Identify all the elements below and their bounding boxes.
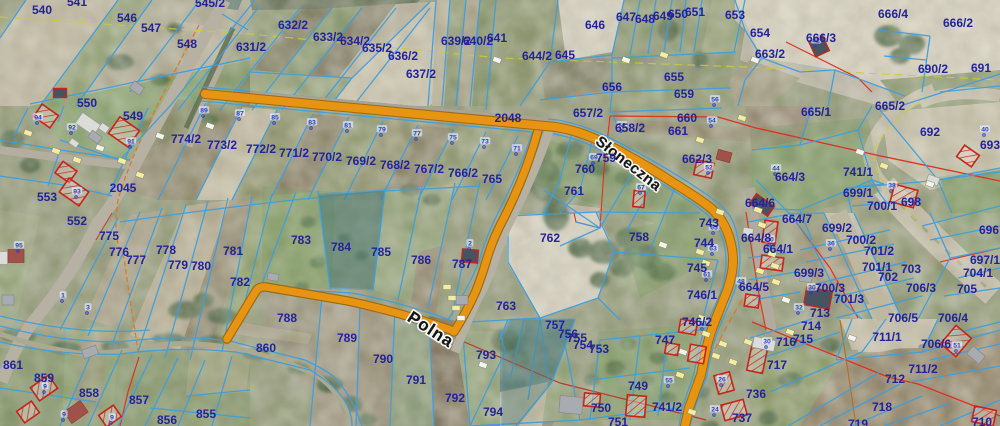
svg-text:693: 693 xyxy=(980,138,1000,152)
svg-text:859: 859 xyxy=(34,371,54,385)
svg-text:737: 737 xyxy=(732,411,752,425)
svg-text:744: 744 xyxy=(694,236,714,250)
svg-text:765: 765 xyxy=(482,172,502,186)
svg-text:692: 692 xyxy=(920,125,940,139)
svg-text:664/6: 664/6 xyxy=(745,196,775,210)
svg-text:716: 716 xyxy=(776,335,796,349)
svg-text:781: 781 xyxy=(223,244,243,258)
svg-text:632/2: 632/2 xyxy=(278,18,308,32)
svg-text:655: 655 xyxy=(664,70,684,84)
svg-text:691: 691 xyxy=(971,61,991,75)
svg-text:553: 553 xyxy=(37,190,57,204)
svg-text:787: 787 xyxy=(452,257,472,271)
svg-text:659: 659 xyxy=(674,87,694,101)
svg-text:661: 661 xyxy=(668,124,688,138)
svg-text:85: 85 xyxy=(271,115,279,122)
svg-text:706/3: 706/3 xyxy=(906,281,936,295)
svg-text:713: 713 xyxy=(810,306,830,320)
svg-text:56: 56 xyxy=(711,97,719,104)
svg-text:770/2: 770/2 xyxy=(312,150,342,164)
svg-text:763: 763 xyxy=(496,299,516,313)
svg-text:785: 785 xyxy=(371,245,391,259)
svg-text:860: 860 xyxy=(256,341,276,355)
svg-text:712: 712 xyxy=(885,372,905,386)
svg-text:94: 94 xyxy=(34,115,42,122)
svg-text:92: 92 xyxy=(68,125,76,132)
svg-text:772/2: 772/2 xyxy=(246,142,276,156)
svg-text:79: 79 xyxy=(378,127,386,134)
svg-text:701/3: 701/3 xyxy=(834,292,864,306)
svg-text:791: 791 xyxy=(406,373,426,387)
svg-text:758: 758 xyxy=(629,230,649,244)
svg-text:699/3: 699/3 xyxy=(794,266,824,280)
svg-text:666/4: 666/4 xyxy=(878,7,908,21)
svg-text:719: 719 xyxy=(848,417,868,426)
svg-text:704/1: 704/1 xyxy=(963,266,993,280)
svg-text:751: 751 xyxy=(608,415,628,426)
svg-text:75: 75 xyxy=(449,135,457,142)
svg-text:645: 645 xyxy=(555,48,575,62)
svg-text:717: 717 xyxy=(767,358,787,372)
svg-text:711/1: 711/1 xyxy=(872,330,902,344)
svg-text:701/2: 701/2 xyxy=(864,244,894,258)
svg-text:32: 32 xyxy=(795,305,803,312)
svg-text:664/5: 664/5 xyxy=(739,280,769,294)
svg-text:36: 36 xyxy=(827,241,835,248)
svg-text:698: 698 xyxy=(901,195,921,209)
svg-text:761: 761 xyxy=(564,184,584,198)
svg-text:855: 855 xyxy=(196,407,216,421)
svg-text:637/2: 637/2 xyxy=(406,67,436,81)
svg-text:778: 778 xyxy=(156,243,176,257)
svg-text:653: 653 xyxy=(725,8,745,22)
svg-text:766/2: 766/2 xyxy=(448,166,478,180)
svg-text:697/1: 697/1 xyxy=(970,253,1000,267)
svg-text:91: 91 xyxy=(127,139,135,146)
svg-text:762: 762 xyxy=(540,231,560,245)
svg-text:651: 651 xyxy=(685,5,705,19)
svg-text:9: 9 xyxy=(110,415,114,422)
svg-text:788: 788 xyxy=(277,311,297,325)
svg-text:786: 786 xyxy=(411,253,431,267)
svg-text:665/2: 665/2 xyxy=(875,99,905,113)
svg-text:792: 792 xyxy=(445,391,465,405)
svg-text:705: 705 xyxy=(957,282,977,296)
svg-text:782: 782 xyxy=(230,275,250,289)
svg-text:550: 550 xyxy=(77,96,97,110)
svg-text:771/2: 771/2 xyxy=(279,146,309,160)
svg-text:743: 743 xyxy=(699,216,719,230)
svg-text:789: 789 xyxy=(337,331,357,345)
svg-text:656: 656 xyxy=(602,80,622,94)
svg-text:759: 759 xyxy=(596,151,616,165)
svg-text:2048: 2048 xyxy=(495,111,522,125)
svg-text:9: 9 xyxy=(62,412,66,419)
svg-text:699/1: 699/1 xyxy=(843,186,873,200)
svg-text:83: 83 xyxy=(308,120,316,127)
svg-text:777: 777 xyxy=(126,253,146,267)
svg-text:541: 541 xyxy=(67,0,87,9)
svg-text:857: 857 xyxy=(129,393,149,407)
svg-text:657/2: 657/2 xyxy=(573,106,603,120)
svg-text:736: 736 xyxy=(746,387,766,401)
svg-text:741/1: 741/1 xyxy=(843,165,873,179)
svg-text:769/2: 769/2 xyxy=(346,154,376,168)
svg-text:77: 77 xyxy=(413,131,421,138)
svg-text:696: 696 xyxy=(979,223,999,237)
svg-text:545/2: 545/2 xyxy=(195,0,225,10)
svg-text:861: 861 xyxy=(3,358,23,372)
svg-text:750: 750 xyxy=(591,401,611,415)
svg-text:741/2: 741/2 xyxy=(652,400,682,414)
svg-text:87: 87 xyxy=(236,111,244,118)
svg-text:641: 641 xyxy=(487,31,507,45)
svg-text:715: 715 xyxy=(793,332,813,346)
svg-text:783: 783 xyxy=(291,233,311,247)
svg-text:663/2: 663/2 xyxy=(755,47,785,61)
svg-text:773/2: 773/2 xyxy=(207,138,237,152)
svg-text:654: 654 xyxy=(750,26,770,40)
svg-text:647: 647 xyxy=(616,10,636,24)
svg-text:700/1: 700/1 xyxy=(867,199,897,213)
svg-text:26: 26 xyxy=(718,377,726,384)
svg-text:540: 540 xyxy=(32,3,52,17)
svg-text:784: 784 xyxy=(331,240,351,254)
svg-text:666/3: 666/3 xyxy=(806,31,836,45)
svg-text:703: 703 xyxy=(901,262,921,276)
svg-text:71: 71 xyxy=(513,146,521,153)
svg-text:93: 93 xyxy=(73,189,81,196)
svg-text:646: 646 xyxy=(585,18,605,32)
svg-text:54: 54 xyxy=(708,118,716,125)
svg-text:747: 747 xyxy=(655,333,675,347)
svg-text:548: 548 xyxy=(177,37,197,51)
svg-text:775: 775 xyxy=(99,229,119,243)
svg-text:714: 714 xyxy=(801,319,821,333)
svg-text:767/2: 767/2 xyxy=(414,162,444,176)
svg-text:745: 745 xyxy=(687,261,707,275)
svg-text:660: 660 xyxy=(677,111,697,125)
svg-text:2045: 2045 xyxy=(110,181,137,195)
svg-text:856: 856 xyxy=(157,413,177,426)
svg-text:40: 40 xyxy=(981,127,989,134)
svg-text:38: 38 xyxy=(888,183,896,190)
svg-text:89: 89 xyxy=(200,108,208,115)
svg-text:547: 547 xyxy=(141,21,161,35)
svg-text:546: 546 xyxy=(117,11,137,25)
svg-text:858: 858 xyxy=(79,386,99,400)
svg-text:711/2: 711/2 xyxy=(908,362,938,376)
svg-text:749: 749 xyxy=(628,379,648,393)
svg-text:2: 2 xyxy=(468,241,472,248)
svg-text:51: 51 xyxy=(953,343,961,350)
svg-text:73: 73 xyxy=(481,139,489,146)
svg-text:753: 753 xyxy=(589,342,609,356)
svg-text:55: 55 xyxy=(665,378,673,385)
svg-text:710: 710 xyxy=(972,415,992,426)
svg-text:552: 552 xyxy=(67,214,87,228)
svg-text:95: 95 xyxy=(15,243,23,250)
svg-text:30: 30 xyxy=(763,339,771,346)
svg-text:768/2: 768/2 xyxy=(380,158,410,172)
svg-text:666/2: 666/2 xyxy=(943,16,973,30)
svg-text:790: 790 xyxy=(373,352,393,366)
svg-text:706/6: 706/6 xyxy=(921,337,951,351)
svg-text:636/2: 636/2 xyxy=(388,49,418,63)
svg-text:662/3: 662/3 xyxy=(682,152,712,166)
svg-text:24: 24 xyxy=(711,407,719,414)
svg-text:794: 794 xyxy=(483,405,503,419)
svg-text:780: 780 xyxy=(191,259,211,273)
svg-text:3: 3 xyxy=(86,305,90,312)
svg-text:665/1: 665/1 xyxy=(801,105,831,119)
svg-text:746/2: 746/2 xyxy=(682,315,712,329)
svg-text:1: 1 xyxy=(61,293,65,300)
svg-text:631/2: 631/2 xyxy=(236,40,266,54)
svg-text:664/8: 664/8 xyxy=(741,231,771,245)
svg-text:706/5: 706/5 xyxy=(888,311,918,325)
svg-text:658/2: 658/2 xyxy=(615,121,645,135)
svg-text:702: 702 xyxy=(878,270,898,284)
svg-text:633/2: 633/2 xyxy=(313,30,343,44)
svg-text:793: 793 xyxy=(476,348,496,362)
svg-text:718: 718 xyxy=(872,400,892,414)
svg-text:81: 81 xyxy=(344,123,352,130)
svg-text:779: 779 xyxy=(168,258,188,272)
svg-text:664/3: 664/3 xyxy=(775,170,805,184)
svg-text:760: 760 xyxy=(575,162,595,176)
svg-text:746/1: 746/1 xyxy=(687,288,717,302)
svg-text:664/7: 664/7 xyxy=(782,212,812,226)
svg-text:644/2: 644/2 xyxy=(522,49,552,63)
svg-text:549: 549 xyxy=(123,109,143,123)
svg-text:706/4: 706/4 xyxy=(938,311,968,325)
svg-text:690/2: 690/2 xyxy=(918,62,948,76)
svg-text:774/2: 774/2 xyxy=(171,132,201,146)
